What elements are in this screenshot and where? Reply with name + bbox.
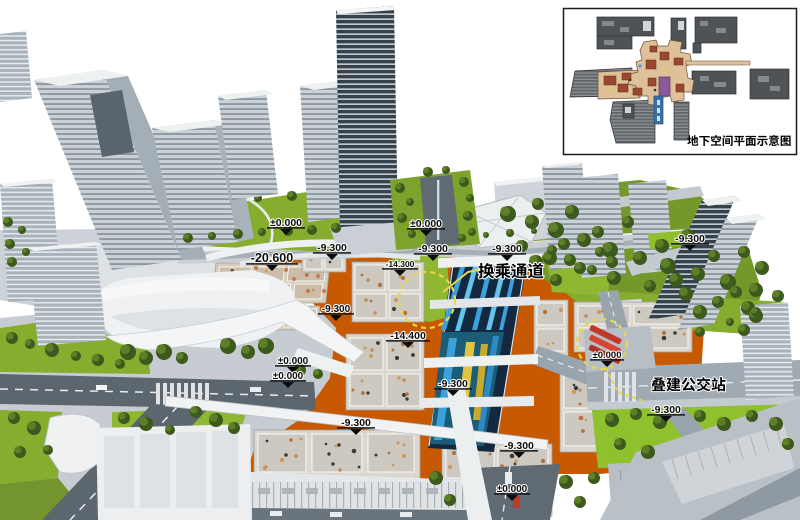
svg-text:-14.300: -14.300: [386, 259, 415, 269]
svg-text:-20.600: -20.600: [251, 251, 293, 265]
